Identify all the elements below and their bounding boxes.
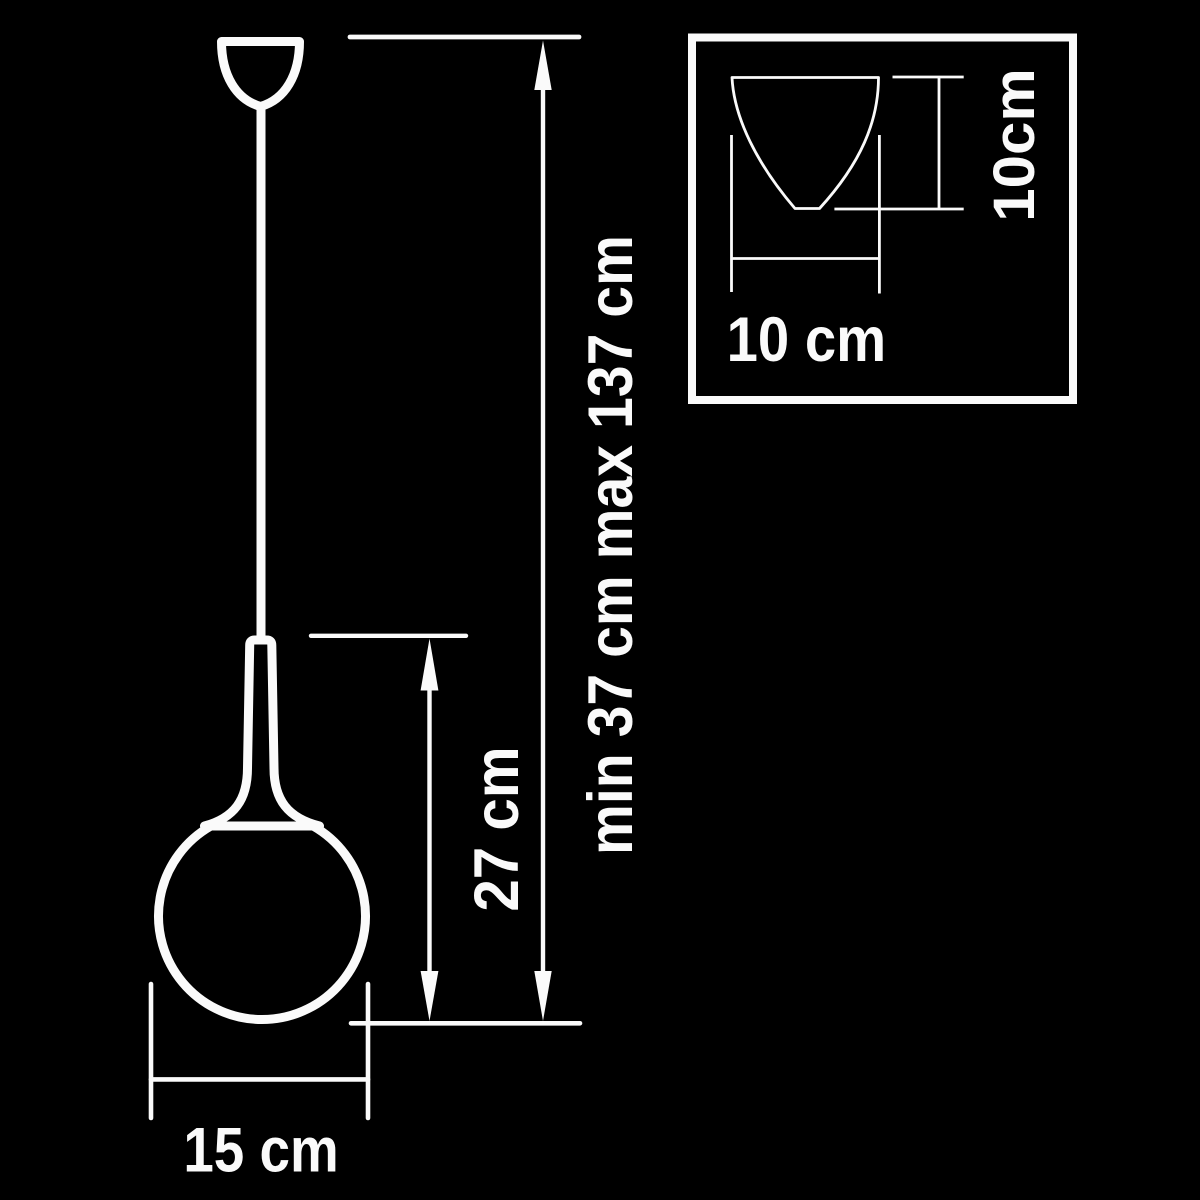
svg-text:15 cm: 15 cm <box>183 1115 338 1185</box>
svg-text:min 37 cm max 137 cm: min 37 cm max 137 cm <box>575 235 645 855</box>
svg-text:27 cm: 27 cm <box>461 746 532 911</box>
svg-text:10 cm: 10 cm <box>727 304 887 375</box>
svg-text:10cm: 10cm <box>982 68 1047 222</box>
